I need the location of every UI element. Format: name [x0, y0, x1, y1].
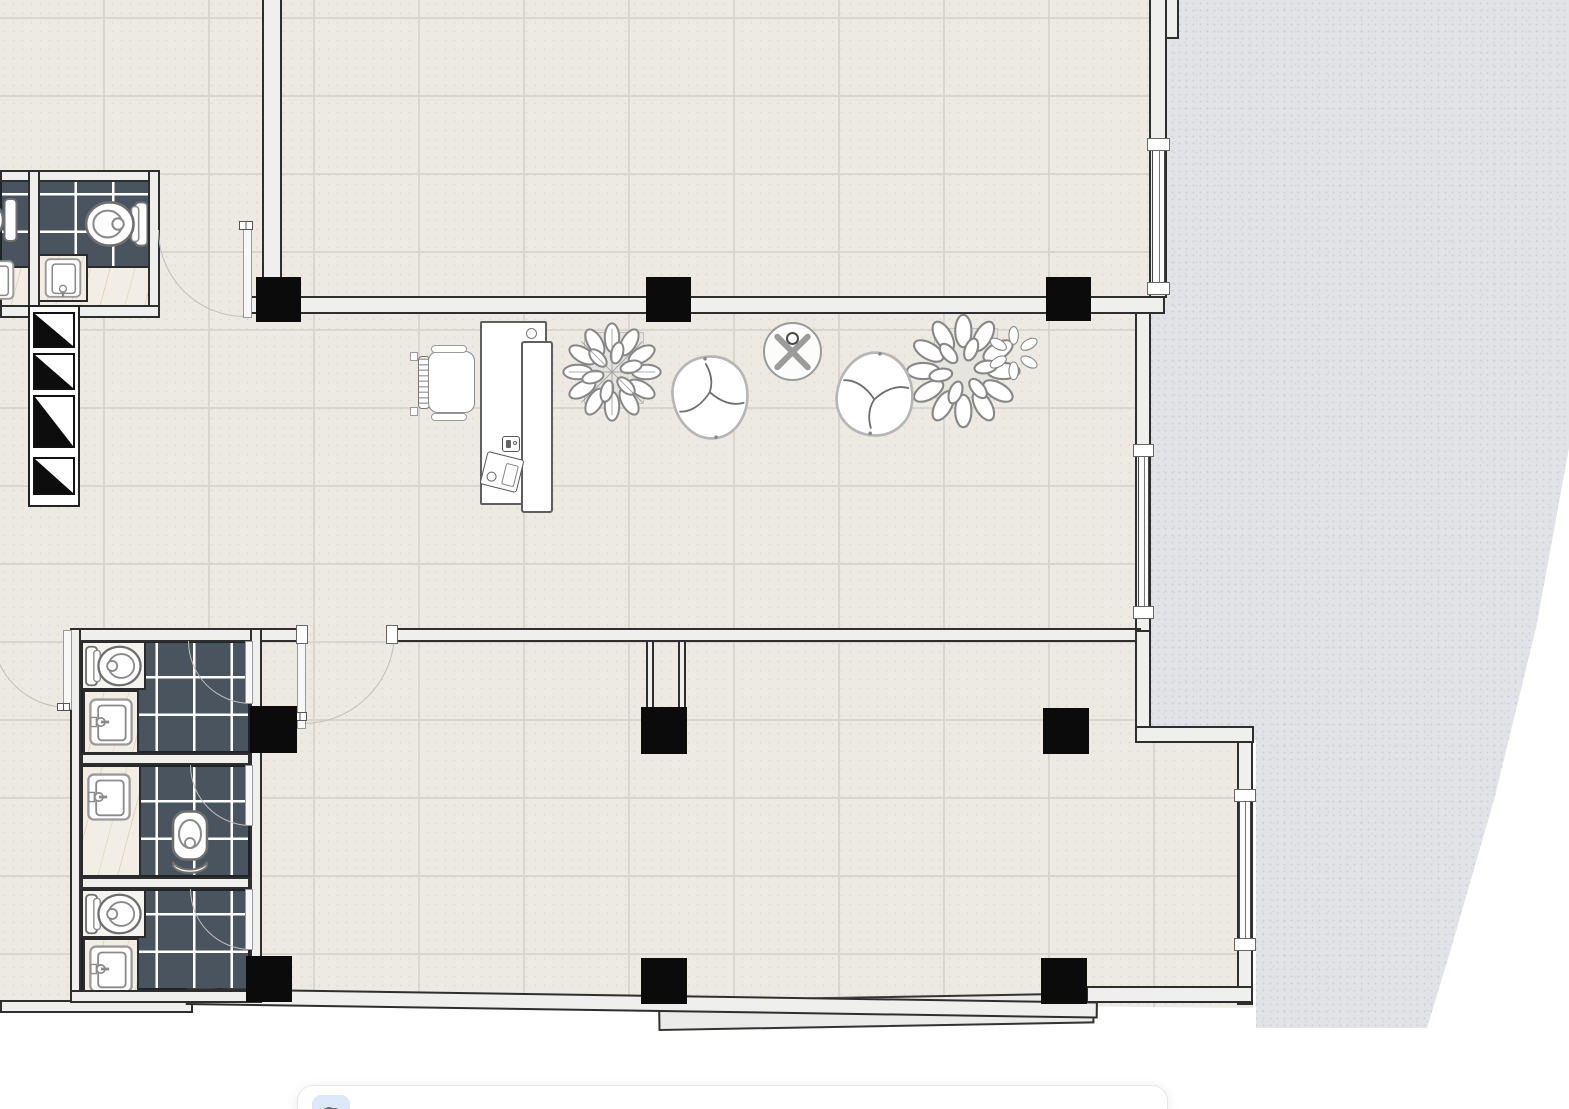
- lounge-chair-2[interactable]: [825, 344, 925, 444]
- wc-upper-wall-top[interactable]: [0, 170, 160, 182]
- door-wc3-leaf[interactable]: [245, 889, 253, 950]
- wc-block-divider-2[interactable]: [81, 877, 250, 889]
- toilet-2[interactable]: [168, 810, 212, 876]
- wall-right-lower[interactable]: [1135, 630, 1151, 734]
- column-7[interactable]: [246, 956, 292, 1002]
- column-5[interactable]: [641, 707, 687, 754]
- reception-desk-panel[interactable]: [521, 341, 553, 513]
- door-corridor-leaf[interactable]: [63, 630, 72, 710]
- floor-plan-canvas: ▶ ▾ ✎ ▱ ◠ ▭ ▪ ≡ A ↔ ▤ ○: [0, 0, 1569, 1109]
- door-wc1-leaf[interactable]: [245, 641, 253, 704]
- window-1-cap-bottom: [1147, 282, 1170, 295]
- window-1-cap-top: [1147, 138, 1170, 151]
- chair-foot-bottom: [410, 407, 418, 416]
- door-upper-hinge: [239, 221, 253, 230]
- wc-upper-wall-divider[interactable]: [28, 170, 40, 310]
- window-2-cap-bottom: [1133, 606, 1154, 619]
- column-2[interactable]: [646, 277, 691, 322]
- window-1-glass[interactable]: [1152, 150, 1165, 284]
- tool-settings[interactable]: ○: [312, 1095, 350, 1109]
- shaft-cell-3: [33, 395, 75, 448]
- chair-arm-bottom: [431, 413, 467, 421]
- door-corridor-hinge: [57, 703, 70, 711]
- column-1[interactable]: [256, 277, 301, 322]
- door-lobby-cap-right: [386, 625, 398, 644]
- sink-1[interactable]: [89, 697, 133, 747]
- sink-sliver[interactable]: [0, 260, 18, 300]
- chair-seat: [428, 351, 475, 413]
- shaft-cell-1: [33, 312, 75, 348]
- door-lobby-cap-left: [296, 625, 308, 644]
- column-3[interactable]: [1046, 277, 1091, 321]
- table-kettle: [786, 332, 799, 345]
- column-8[interactable]: [641, 958, 687, 1004]
- wall-stub-a[interactable]: [646, 640, 654, 710]
- door-upper-leaf[interactable]: [243, 228, 252, 318]
- sink-3[interactable]: [89, 945, 133, 993]
- sink-2[interactable]: [87, 772, 131, 822]
- chair-arm-top: [431, 345, 467, 353]
- lounge-chair-1[interactable]: [660, 347, 761, 448]
- wc-block-wall-bottom[interactable]: [70, 990, 262, 1003]
- wall-divider-left[interactable]: [70, 628, 306, 642]
- toolbar: ▶ ▾ ✎ ▱ ◠ ▭ ▪ ≡ A ↔ ▤ ○: [297, 1085, 1168, 1109]
- settings-tool-icon: ○: [326, 1104, 336, 1109]
- desk-phone[interactable]: [502, 436, 520, 452]
- column-6[interactable]: [1043, 708, 1089, 754]
- wc-block-divider-1[interactable]: [81, 753, 250, 765]
- window-3-cap-top: [1234, 789, 1256, 802]
- plant-1[interactable]: [556, 318, 668, 426]
- wc-upper-left-stall: [0, 182, 28, 303]
- window-2-glass[interactable]: [1138, 456, 1149, 608]
- toilet-sliver[interactable]: [0, 194, 18, 246]
- wc-upper-wall-bottom[interactable]: [0, 305, 160, 318]
- column-9[interactable]: [1041, 958, 1087, 1004]
- wall-stub-b[interactable]: [678, 640, 686, 710]
- column-4[interactable]: [250, 706, 297, 753]
- desk-cup[interactable]: [526, 328, 537, 339]
- door-wc2-leaf[interactable]: [245, 765, 253, 826]
- wall-divider-right[interactable]: [392, 628, 1141, 642]
- sink-upper[interactable]: [42, 258, 84, 298]
- shaft-cell-2: [33, 353, 75, 390]
- chair-foot-top: [410, 352, 418, 361]
- window-3-glass[interactable]: [1239, 802, 1251, 940]
- wall-upper-left-vertical[interactable]: [262, 0, 282, 313]
- window-3-cap-bottom: [1234, 938, 1256, 951]
- toilet-1[interactable]: [84, 644, 144, 688]
- window-2-cap-top: [1133, 444, 1154, 457]
- toilet-3[interactable]: [84, 892, 144, 936]
- office-chair[interactable]: [408, 344, 480, 422]
- wall-bottom-right[interactable]: [1086, 986, 1253, 1003]
- shaft-cell-4: [33, 457, 75, 495]
- round-side-table[interactable]: [763, 322, 822, 381]
- toilet-upper[interactable]: [83, 196, 149, 252]
